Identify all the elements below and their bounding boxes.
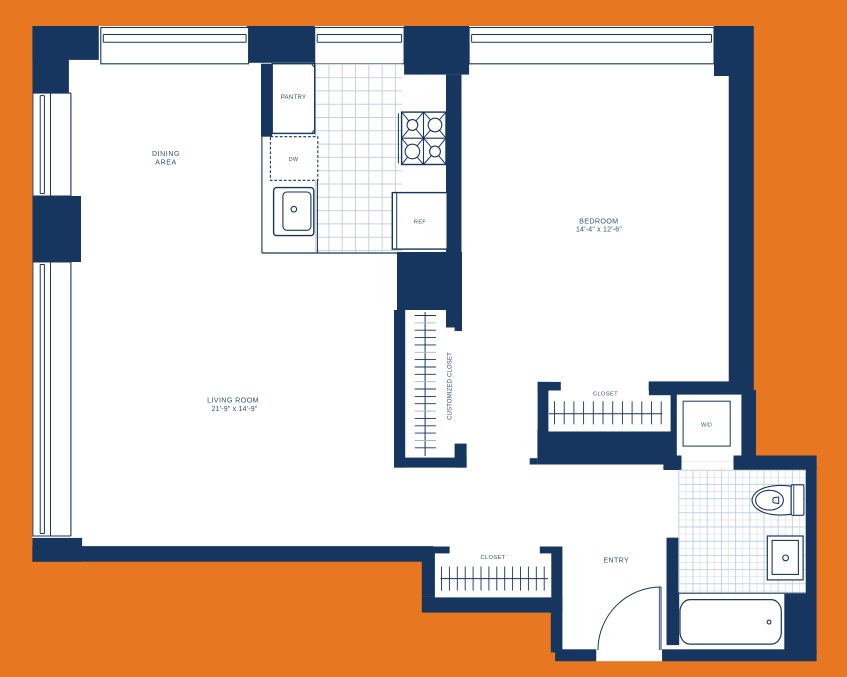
svg-text:CLOSET: CLOSET	[481, 555, 506, 561]
svg-text:DW: DW	[289, 157, 299, 163]
svg-text:ENTRY: ENTRY	[603, 558, 629, 565]
svg-text:DINING: DINING	[152, 151, 180, 158]
svg-text:BEDROOM: BEDROOM	[579, 217, 618, 226]
svg-text:CLOSET: CLOSET	[593, 392, 618, 398]
svg-text:W/D: W/D	[701, 423, 712, 429]
svg-text:CUSTOMIZED CLOSET: CUSTOMIZED CLOSET	[448, 352, 454, 420]
svg-text:21'-9" x 14'-9": 21'-9" x 14'-9"	[211, 406, 257, 413]
svg-text:PANTRY: PANTRY	[281, 95, 307, 101]
svg-text:LIVING ROOM: LIVING ROOM	[207, 396, 259, 405]
svg-text:AREA: AREA	[155, 160, 176, 167]
svg-text:REF: REF	[414, 220, 426, 226]
svg-text:14'-4" x 12'-6": 14'-4" x 12'-6"	[576, 227, 622, 234]
